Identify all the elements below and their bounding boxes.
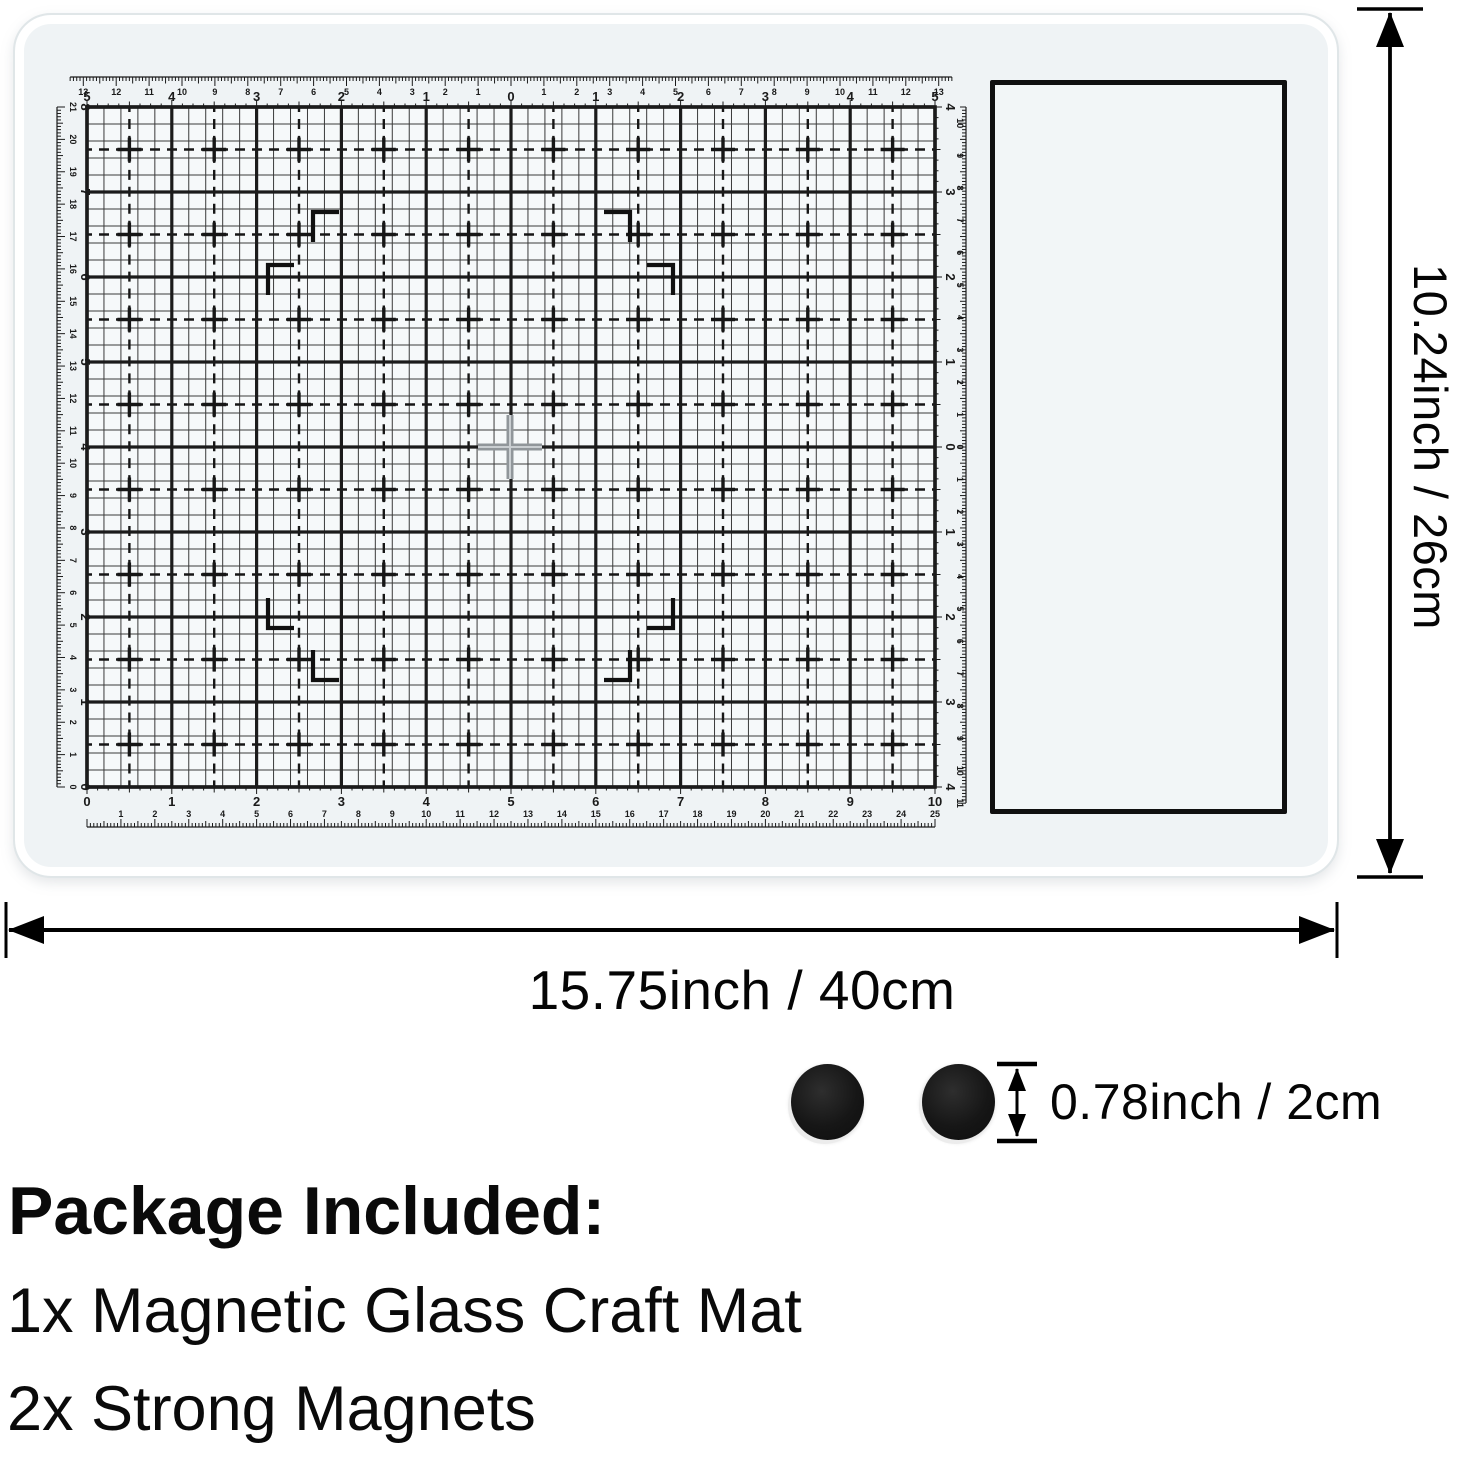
magnet-parking-panel: [990, 80, 1287, 814]
craft-mat: [13, 13, 1339, 878]
width-dimension-label: 15.75inch / 40cm: [529, 958, 956, 1022]
magnet-dimension-label: 0.78inch / 2cm: [1050, 1070, 1382, 1134]
width-dimension-arrow: [6, 902, 1337, 958]
height-dimension-label: 10.24inch / 26cm: [1398, 117, 1458, 777]
magnet-dimension-arrow: [997, 1064, 1037, 1141]
magnet-2: [922, 1064, 995, 1140]
package-item: 2x Strong Magnets: [7, 1376, 536, 1442]
product-dimension-diagram: 1312111098765432112345678910111213543210…: [0, 0, 1458, 1458]
package-item: 1x Magnetic Glass Craft Mat: [7, 1278, 802, 1344]
package-title: Package Included:: [8, 1176, 605, 1247]
magnet-1: [791, 1064, 864, 1140]
